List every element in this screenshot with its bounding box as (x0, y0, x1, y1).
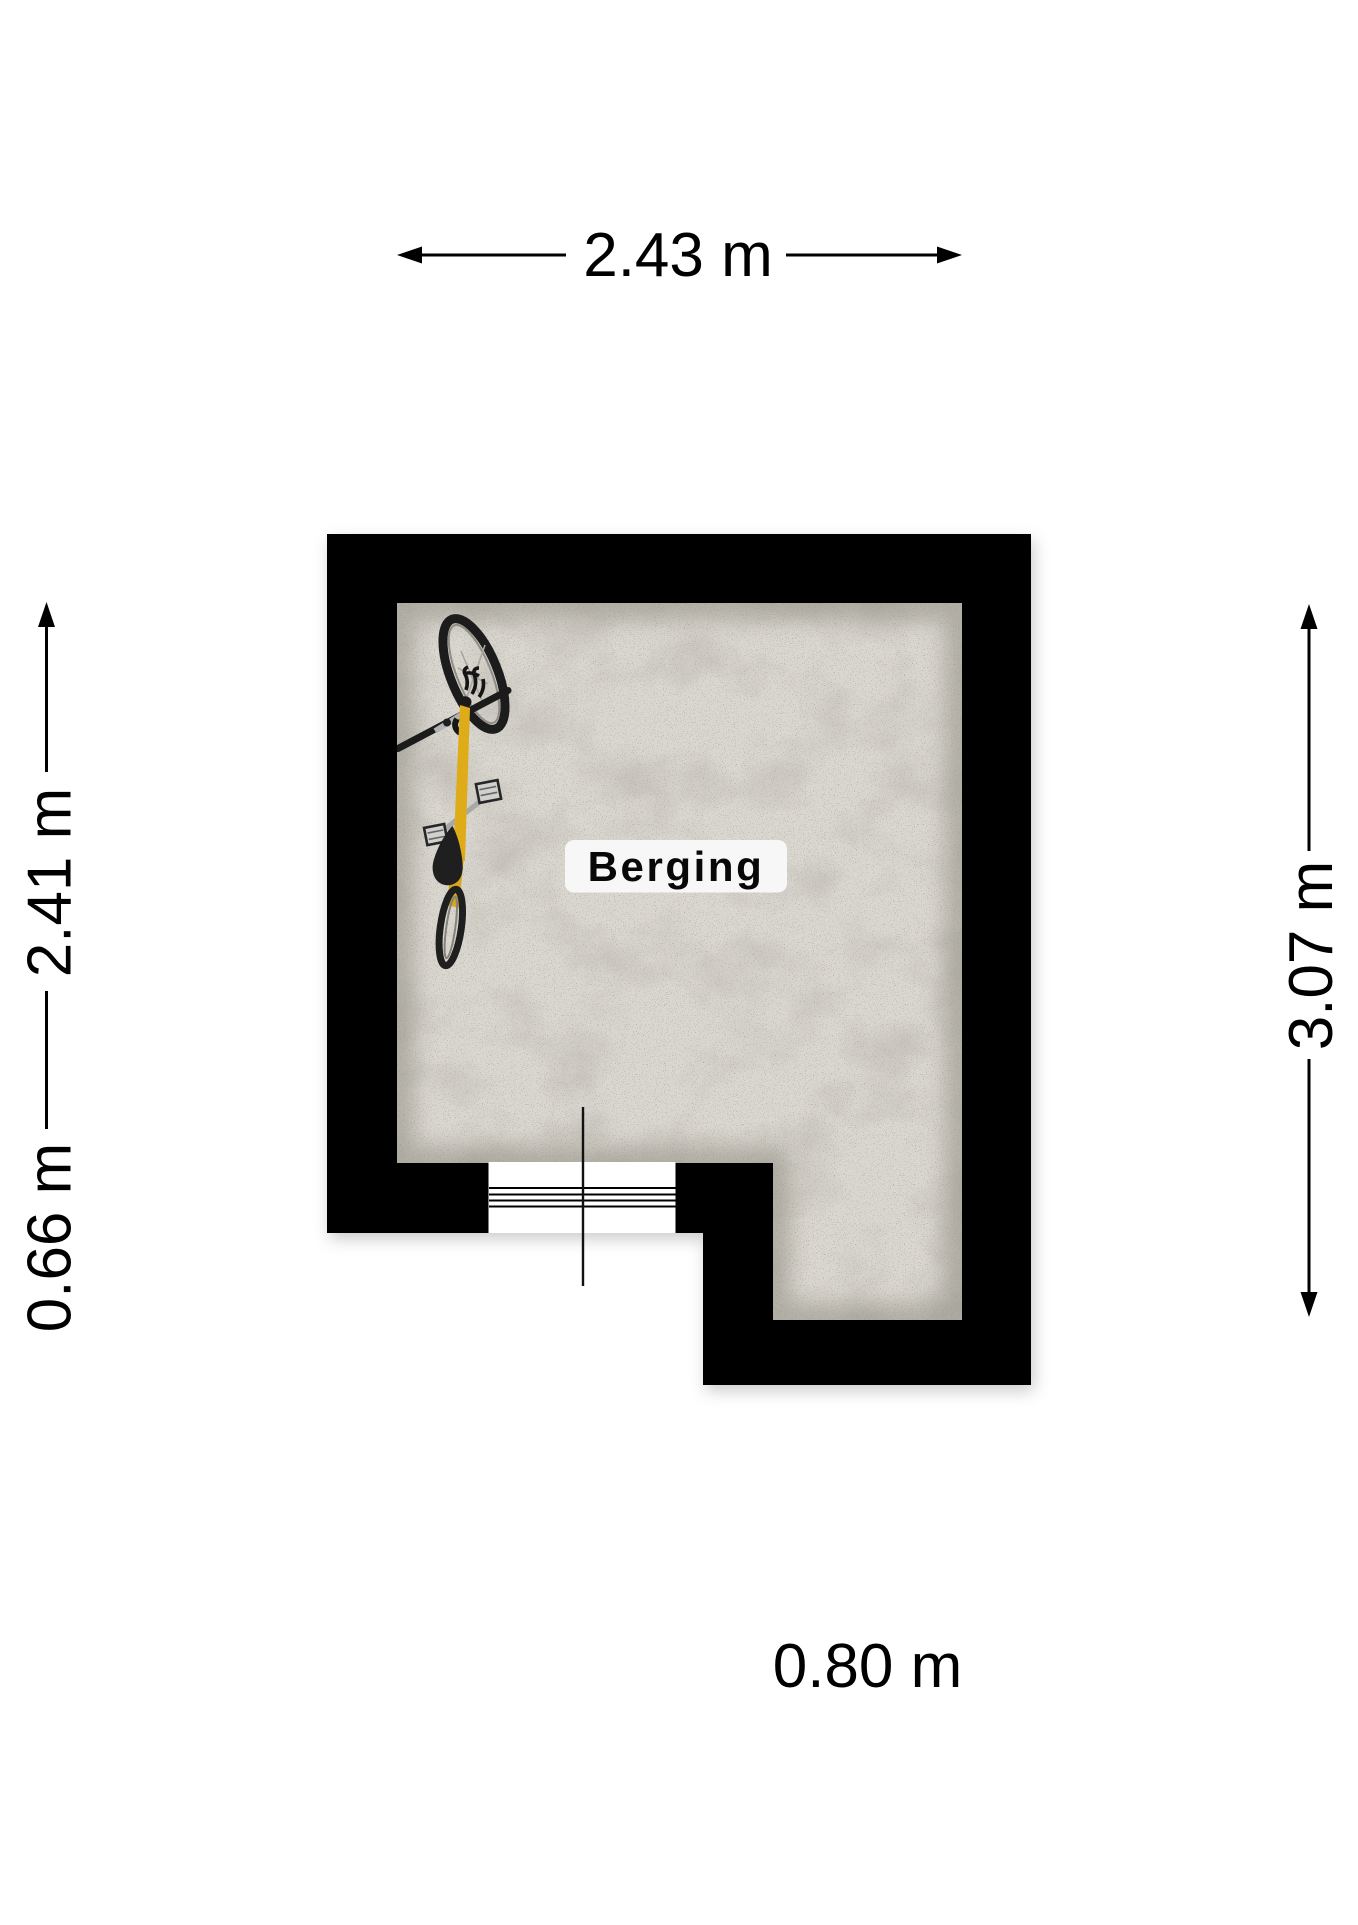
svg-text:2.41 m: 2.41 m (16, 788, 85, 978)
svg-text:Berging: Berging (588, 843, 765, 890)
svg-text:0.80 m: 0.80 m (773, 1632, 963, 1701)
svg-text:2.43 m: 2.43 m (583, 221, 773, 290)
svg-text:0.66 m: 0.66 m (16, 1143, 85, 1333)
svg-text:3.07 m: 3.07 m (1277, 861, 1346, 1051)
